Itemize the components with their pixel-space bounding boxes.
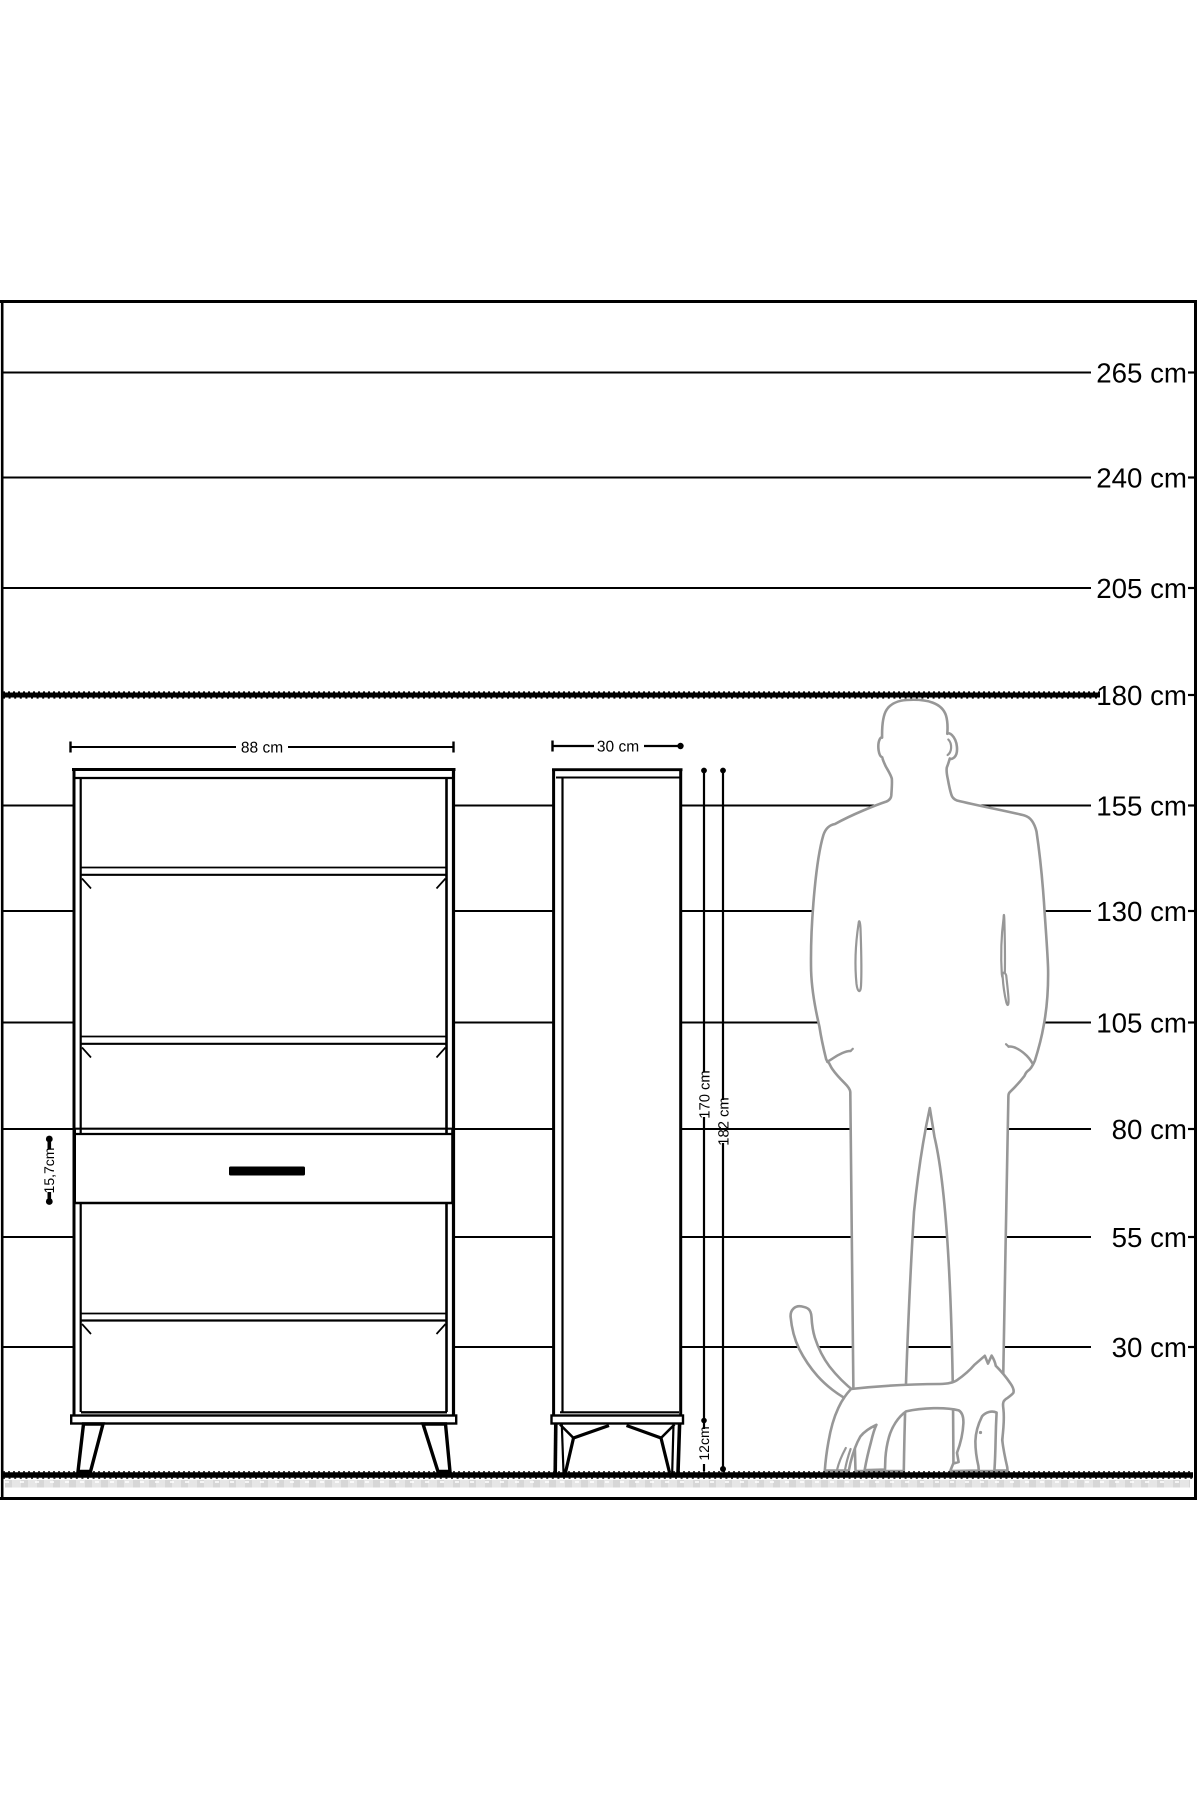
svg-text:180 cm: 180 cm: [1096, 680, 1187, 711]
svg-text:130 cm: 130 cm: [1096, 896, 1187, 927]
svg-text:240 cm: 240 cm: [1096, 463, 1187, 494]
svg-text:12cm: 12cm: [696, 1426, 712, 1460]
svg-text:170 cm: 170 cm: [697, 1070, 713, 1119]
svg-text:105 cm: 105 cm: [1096, 1008, 1187, 1039]
svg-text:15,7cm: 15,7cm: [41, 1148, 57, 1194]
svg-text:30 cm: 30 cm: [1112, 1332, 1187, 1363]
svg-text:155 cm: 155 cm: [1096, 791, 1187, 822]
svg-text:88 cm: 88 cm: [241, 740, 283, 757]
svg-text:265 cm: 265 cm: [1096, 358, 1187, 389]
svg-text:80 cm: 80 cm: [1112, 1114, 1187, 1145]
svg-text:205 cm: 205 cm: [1096, 573, 1187, 604]
svg-text:182 cm: 182 cm: [716, 1097, 732, 1146]
svg-text:30 cm: 30 cm: [597, 739, 639, 756]
svg-text:55 cm: 55 cm: [1112, 1222, 1187, 1253]
